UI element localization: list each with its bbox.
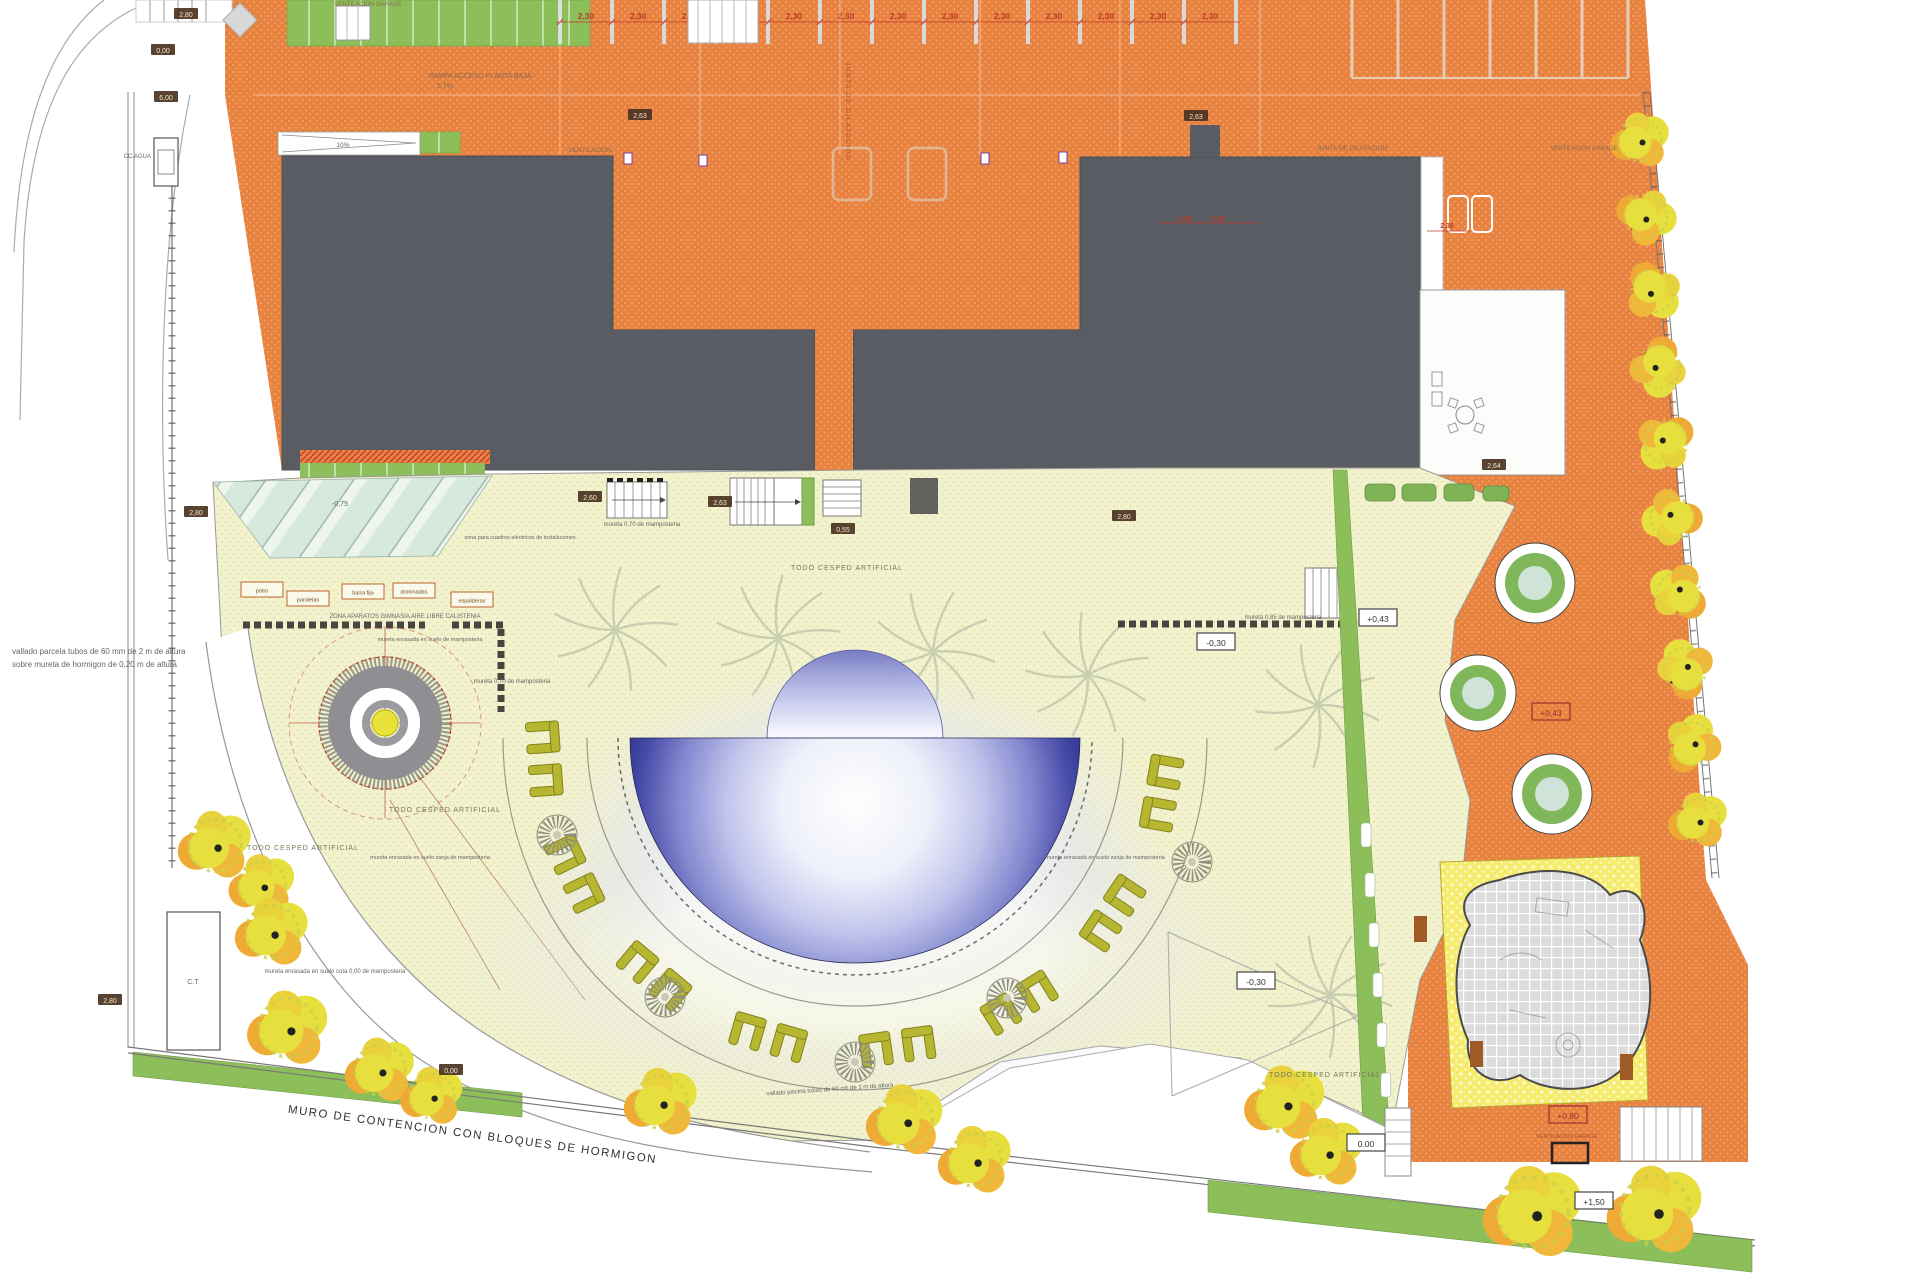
equipment-label-text: paralelas <box>297 598 320 604</box>
elevation-chip-label: 6,00 <box>159 95 173 102</box>
tree-icon <box>1483 1166 1581 1256</box>
equipment-label-text: espalderas <box>459 599 486 605</box>
label-mureta-070: mureta 0,70 de mamposteria <box>604 522 681 528</box>
label-ramp-10: 10% <box>336 142 349 149</box>
level-badge-label: +1,50 <box>1583 1197 1605 1207</box>
vent-shaft <box>336 6 370 40</box>
elevation-chip-label: 2,63 <box>633 113 647 120</box>
stair-flight <box>730 478 814 525</box>
dimension-label: 2,30 <box>630 11 647 21</box>
label-cesped-2: TODO CESPED ARTIFICIAL <box>389 807 501 814</box>
paving-gap <box>815 330 853 470</box>
level-badge-label: 0.00 <box>1358 1139 1375 1149</box>
elevation-chip-label: 0,55 <box>836 527 850 534</box>
stair-flight <box>823 480 861 516</box>
label-rampa-slope: 5.7% <box>437 83 453 90</box>
dimension-label: 2,30 <box>1046 11 1063 21</box>
top-stair <box>688 0 758 43</box>
label-ventilacion-garage-top: VENTILACION GARAGE <box>334 2 401 8</box>
label-mureta-zanja-1: mureta enrasada en suelo zanja de mampos… <box>370 855 490 861</box>
level-badge-label: +0,43 <box>1540 708 1562 718</box>
planter <box>1512 754 1592 834</box>
tree-icon <box>1607 1166 1702 1253</box>
equipment-label-text: potro <box>256 589 269 595</box>
garage-stair <box>1620 1107 1702 1161</box>
dimension-label: 2,30 <box>942 11 959 21</box>
elevation-chip-label: 2,64 <box>1487 463 1501 470</box>
elevation-chip-label: 2,80 <box>1117 514 1131 521</box>
label-ventilacion-garage-right: VENTILACION GARAGE <box>1550 146 1617 152</box>
label-level-m075: -0,75 <box>332 501 348 508</box>
wall-stub <box>910 478 938 514</box>
step-stone <box>1369 923 1379 947</box>
bench <box>1620 1054 1633 1080</box>
level-badge-label: +0,80 <box>1557 1111 1579 1121</box>
dimension-label: 2,36 <box>1440 223 1454 230</box>
equipment-label-text: barra fija <box>352 591 374 597</box>
label-ct: C.T <box>187 979 199 986</box>
dimension-label: 2,30 <box>1150 11 1167 21</box>
label-rampa: RAMPA ACCESO PLANTA BAJA <box>429 73 532 80</box>
step-stone <box>1361 823 1371 847</box>
side-stair <box>1385 1108 1411 1176</box>
label-cesped-4: TODO CESPED ARTIFICIAL <box>1269 1072 1381 1079</box>
dimension-label: 2,30 <box>578 11 595 21</box>
label-mureta-enrasada: mureta enrasada en suelo de mamposteria <box>378 637 484 643</box>
dimension-label: 2,36 <box>1211 216 1225 223</box>
step-stone <box>1373 973 1383 997</box>
planter <box>1495 543 1575 623</box>
planter <box>1440 655 1516 731</box>
site-plan-drawing: 2,302,302,302,302,302,302,302,302,302,30… <box>0 0 1920 1280</box>
dimension-label: 2,30 <box>1098 11 1115 21</box>
label-mureta-cota: mureta enrasada en suelo cota 0,00 de ma… <box>265 969 406 975</box>
label-zona-aparatos: ZONA APARATOS GIMNASIA AIRE LIBRE CALIST… <box>329 614 480 620</box>
expansion-strip <box>300 450 490 464</box>
label-junta-vertical: JUNTA DE DILATACION <box>844 62 851 161</box>
elevation-chip-label: 2,63 <box>713 500 727 507</box>
step-stone <box>1377 1023 1387 1047</box>
tree-icon <box>235 898 308 965</box>
elevation-chip-label: 0,00 <box>156 48 170 55</box>
elevation-chip-label: 2,63 <box>1189 114 1203 121</box>
building-bump <box>1190 125 1220 157</box>
elevation-chip-label: 2,80 <box>179 12 193 19</box>
terrace <box>1420 290 1565 475</box>
step-stone <box>1381 1073 1391 1097</box>
label-vallado-2: sobre mureta de hormigon de 0,20 m de al… <box>12 660 178 669</box>
level-badge-label: -0,30 <box>1206 638 1226 648</box>
dimension-label: 2,30 <box>786 11 803 21</box>
tree-icon <box>345 1038 414 1101</box>
tree-icon <box>400 1067 462 1124</box>
level-badge-label: -0,30 <box>1246 977 1266 987</box>
label-zona-cuadros: zona para cuadros electricos de instalac… <box>464 535 576 541</box>
dimension-label: 2,30 <box>1202 11 1219 21</box>
dimension-label: 2,36 <box>1178 216 1192 223</box>
tree-icon <box>247 990 327 1063</box>
elevation-chip-label: 2,80 <box>103 998 117 1005</box>
dimension-label: 2,30 <box>994 11 1011 21</box>
access-road <box>14 0 190 560</box>
label-junta-right: JUNTA DE DILATACION <box>1317 145 1388 152</box>
dimension-label: 2,30 <box>890 11 907 21</box>
tree-icon <box>178 811 251 878</box>
bench <box>1470 1041 1483 1067</box>
label-cesped-3: TODO CESPED ARTIFICIAL <box>247 845 359 852</box>
label-mureta-zanja-2: mureta enrasada en suelo zanja de mampos… <box>1045 855 1165 861</box>
site-plan-page: 2,302,302,302,302,302,302,302,302,302,30… <box>0 0 1920 1280</box>
stair-flight <box>607 480 667 518</box>
step-stone <box>1365 873 1375 897</box>
level-badge-label: +0,43 <box>1367 614 1389 624</box>
equipment-label-text: dominadas <box>401 590 428 596</box>
elevation-chip-label: 2,60 <box>583 495 597 502</box>
elevation-chip-label: 2,80 <box>189 510 203 517</box>
label-mureta-085: mureta 0,85 de mamposteria <box>1245 615 1322 621</box>
bench <box>1414 916 1427 942</box>
elevation-chip-label: 0,00 <box>444 1068 458 1075</box>
label-mureta-070b: mureta 0,70 de mamposteria <box>474 679 551 685</box>
water-cabinet <box>154 138 178 186</box>
label-cesped-1: TODO CESPED ARTIFICIAL <box>791 565 903 572</box>
label-ventilacion: VENTILACION <box>568 147 612 154</box>
parcel-boundary-left <box>128 92 172 1048</box>
label-ventilacion-garage-bottom: VENTILACION GARAGE <box>1536 1134 1598 1140</box>
label-vallado-1: vallado parcela tubos de 60 mm de 2 m de… <box>12 647 186 656</box>
label-ccagua: CC.AGUA <box>124 154 151 160</box>
